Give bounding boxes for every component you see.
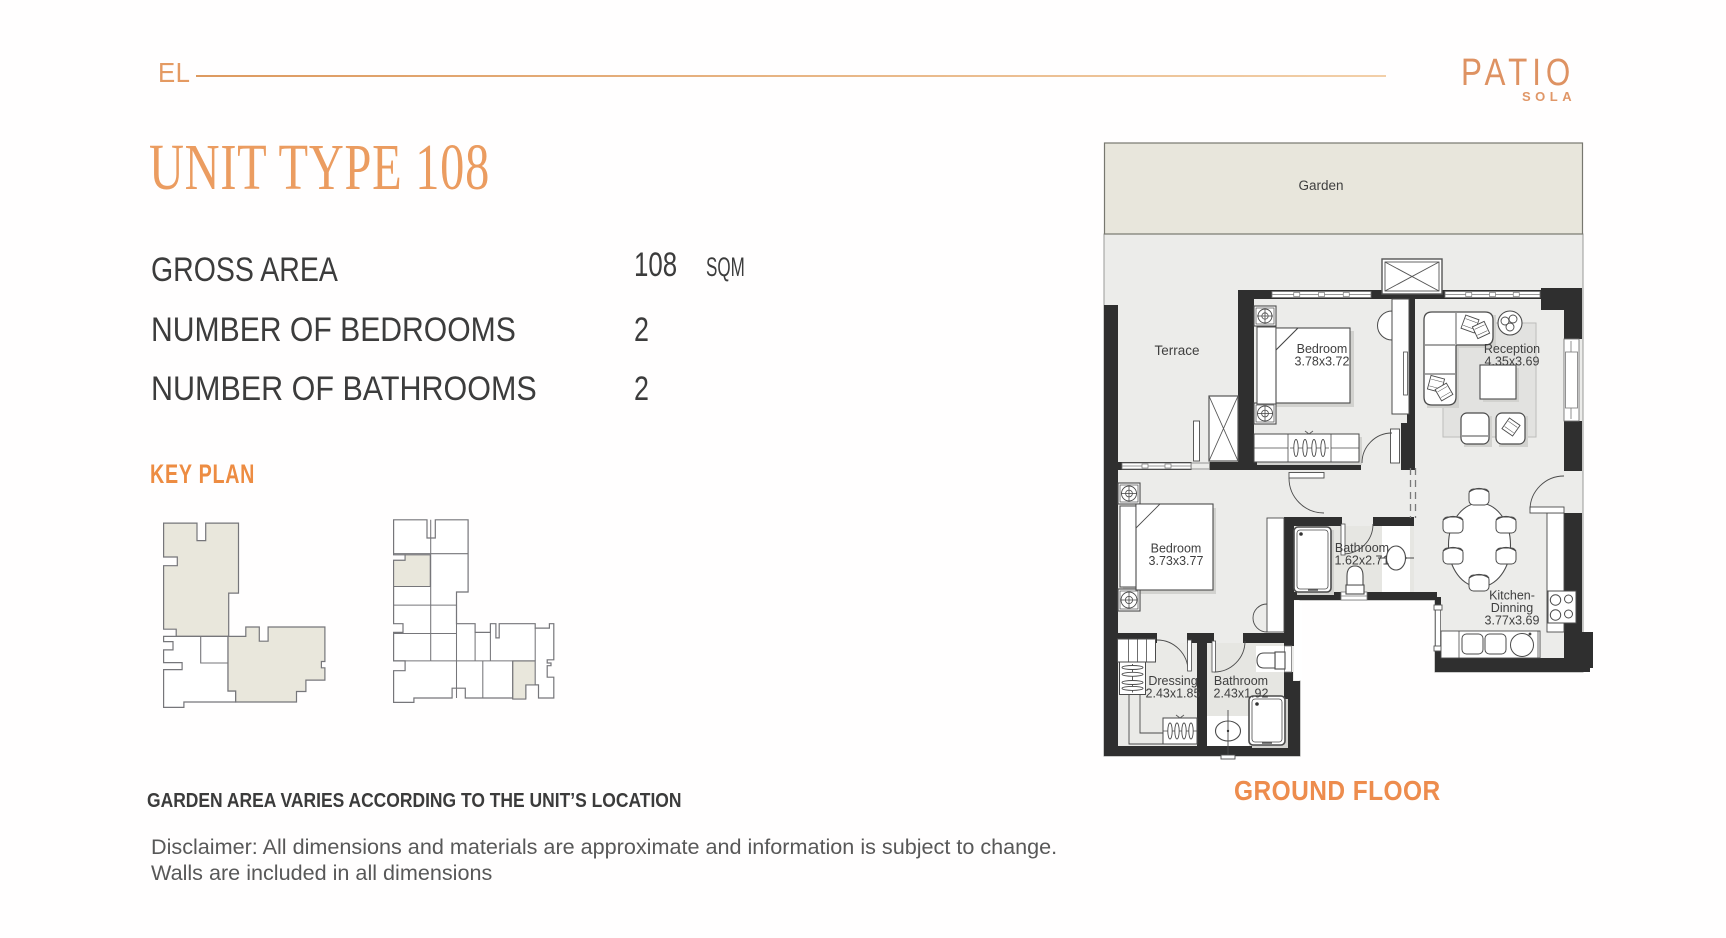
svg-text:Garden: Garden [1298, 178, 1343, 193]
svg-text:3.73x3.77: 3.73x3.77 [1149, 554, 1204, 568]
svg-text:2.43x1.85: 2.43x1.85 [1146, 687, 1201, 701]
svg-text:3.77x3.69: 3.77x3.69 [1485, 614, 1540, 628]
svg-text:Terrace: Terrace [1154, 343, 1199, 358]
svg-text:4.35x3.69: 4.35x3.69 [1485, 355, 1540, 369]
svg-text:1.62x2.71: 1.62x2.71 [1335, 554, 1390, 568]
svg-text:2.43x1.92: 2.43x1.92 [1214, 687, 1269, 701]
svg-text:3.78x3.72: 3.78x3.72 [1295, 355, 1350, 369]
